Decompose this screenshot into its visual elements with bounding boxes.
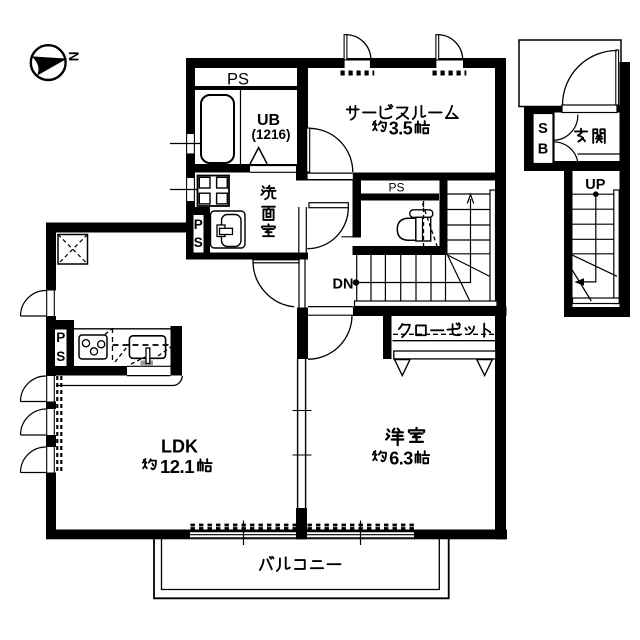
svg-text:12.1: 12.1 [160, 456, 194, 477]
svg-text:PS: PS [227, 71, 249, 89]
svg-text:(1216): (1216) [251, 127, 290, 142]
svg-text:S: S [538, 121, 548, 137]
svg-text:S: S [56, 349, 65, 364]
svg-text:3.5: 3.5 [389, 118, 413, 138]
svg-text:UP: UP [585, 177, 605, 193]
svg-text:LDK: LDK [161, 437, 198, 457]
svg-text:PS: PS [388, 181, 404, 195]
svg-text:S: S [194, 235, 203, 250]
svg-text:DN: DN [333, 277, 354, 293]
svg-text:P: P [56, 330, 65, 345]
svg-text:N: N [66, 52, 81, 62]
svg-text:B: B [538, 142, 548, 158]
svg-text:P: P [194, 217, 203, 232]
svg-text:6.3: 6.3 [389, 448, 413, 468]
